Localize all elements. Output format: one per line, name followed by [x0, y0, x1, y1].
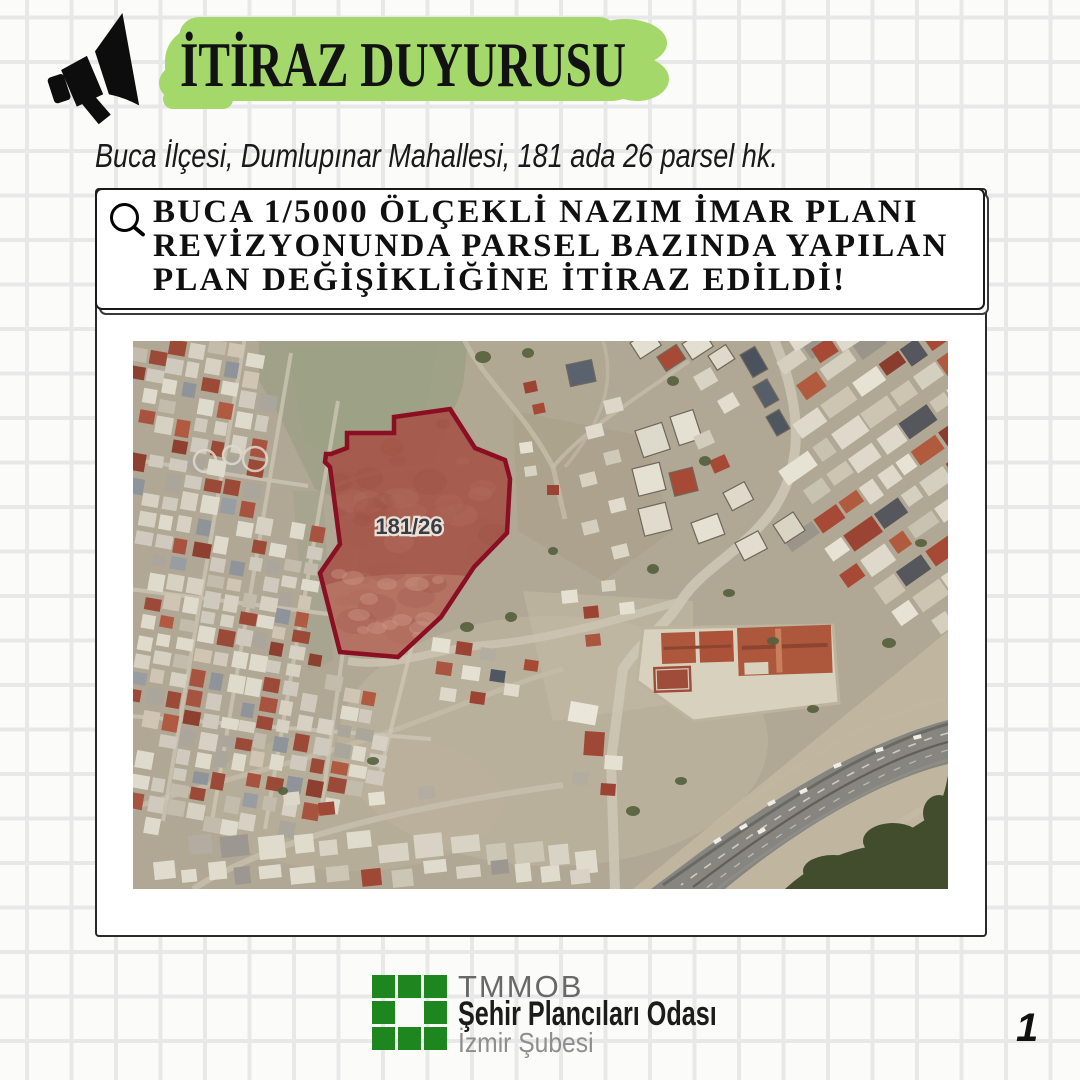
svg-text:181/26: 181/26	[375, 514, 442, 539]
